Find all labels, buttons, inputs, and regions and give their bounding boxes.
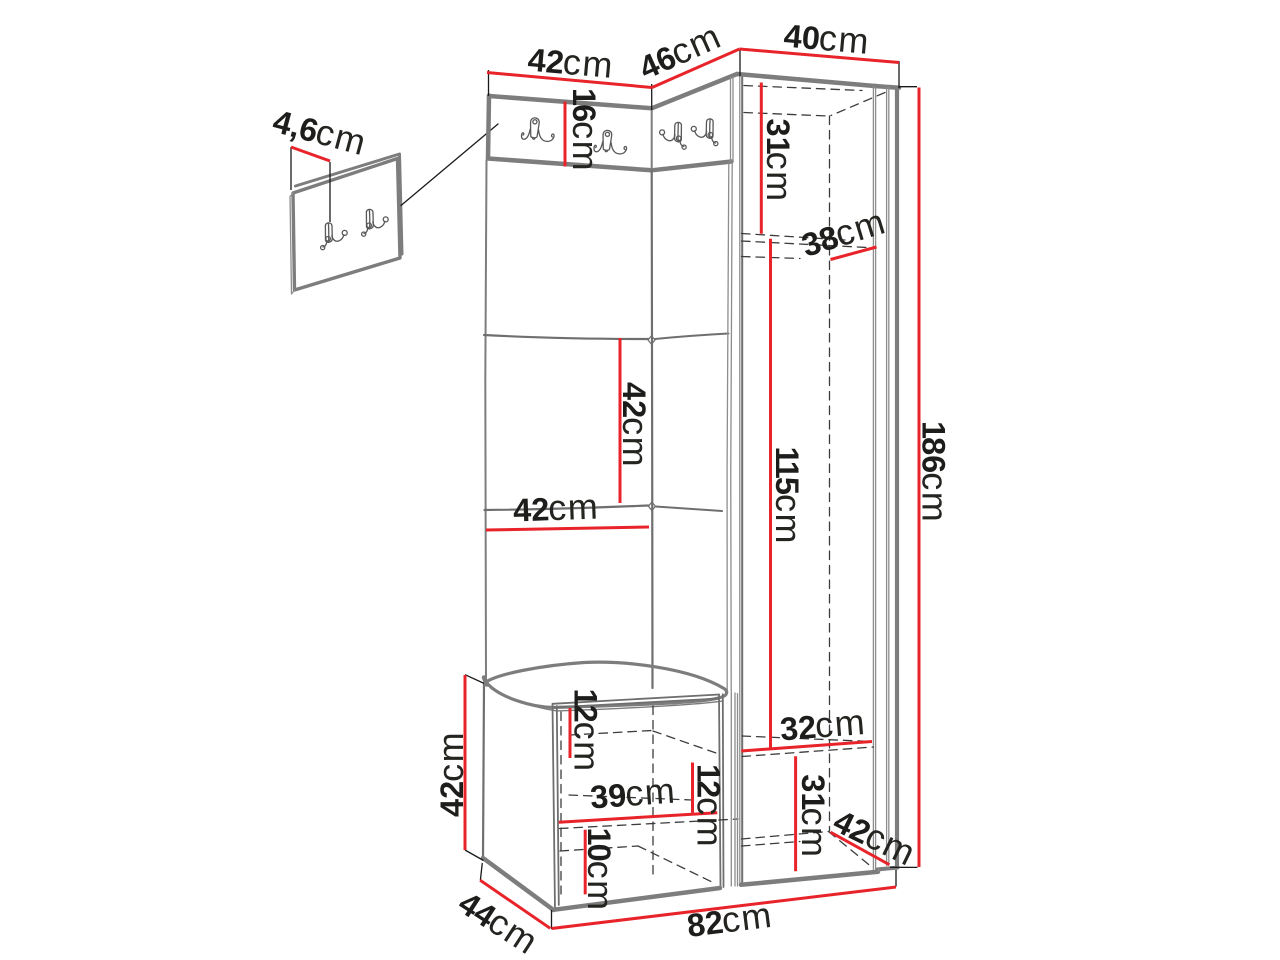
svg-text:12cm: 12cm xyxy=(690,764,731,848)
svg-text:31cm: 31cm xyxy=(794,774,835,858)
svg-text:115cm: 115cm xyxy=(768,447,809,545)
svg-text:12cm: 12cm xyxy=(567,689,608,773)
svg-text:10cm: 10cm xyxy=(580,828,621,912)
svg-text:42cm: 42cm xyxy=(430,731,471,817)
svg-text:186cm: 186cm xyxy=(915,421,956,523)
svg-text:31cm: 31cm xyxy=(759,119,800,203)
svg-text:42cm: 42cm xyxy=(512,486,600,530)
svg-text:42cm: 42cm xyxy=(615,382,656,468)
svg-text:16cm: 16cm xyxy=(565,88,606,172)
